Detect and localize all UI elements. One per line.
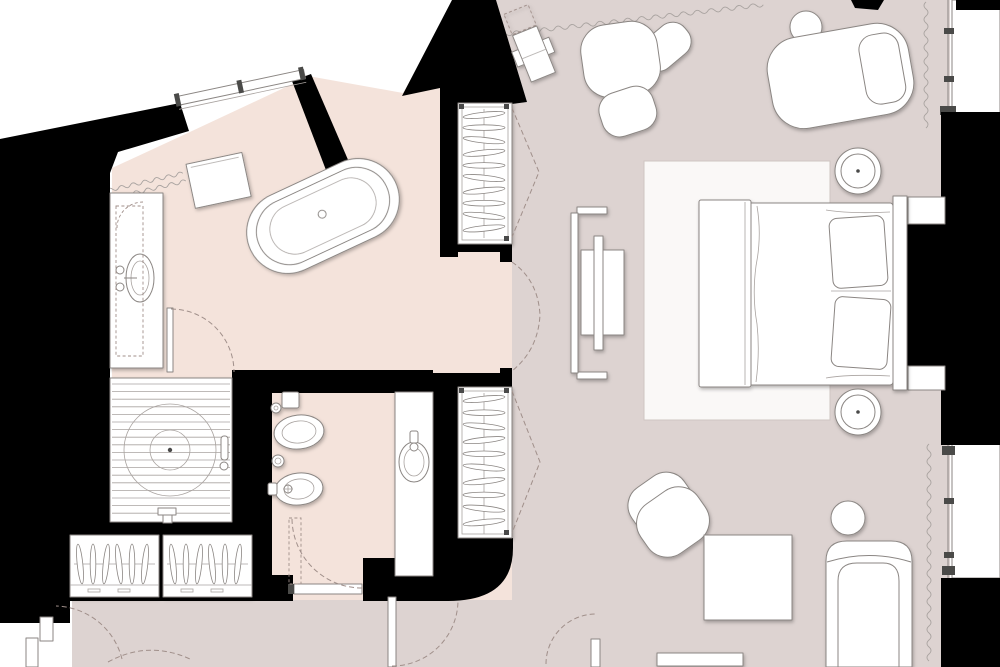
shower-control-icon bbox=[220, 462, 228, 470]
lower-wardrobe bbox=[458, 387, 512, 538]
wall-west-upper-wardrobe bbox=[440, 85, 458, 257]
toilet-cistern bbox=[282, 392, 299, 408]
king-bed bbox=[699, 196, 907, 390]
niche-upper bbox=[908, 197, 945, 224]
tv-panel bbox=[594, 236, 603, 350]
hanger-icon bbox=[90, 544, 96, 584]
round-pillow bbox=[831, 501, 865, 535]
wc-door-leaf bbox=[294, 584, 362, 594]
window-mullion-icon bbox=[944, 552, 954, 558]
nightstand-center bbox=[856, 169, 860, 173]
wc-faucet-icon bbox=[410, 431, 418, 443]
hinge-icon bbox=[504, 530, 509, 535]
hanger-icon bbox=[463, 410, 505, 416]
hanger-icon bbox=[129, 544, 135, 584]
pillow bbox=[831, 296, 892, 370]
wc-faucet-icon bbox=[410, 443, 418, 451]
faucet-icon bbox=[116, 266, 124, 274]
coffee-table bbox=[657, 653, 743, 666]
window-mullion-icon bbox=[944, 498, 954, 504]
window-mullion-icon bbox=[944, 76, 954, 82]
nightstand-bottom bbox=[835, 389, 881, 435]
walk-in-shower bbox=[110, 378, 232, 523]
hinge-icon bbox=[504, 104, 509, 109]
toilet-roll-icon bbox=[271, 403, 281, 413]
window-mullion-icon bbox=[944, 28, 954, 34]
bed-foot-runner bbox=[699, 200, 751, 387]
headboard bbox=[893, 196, 907, 390]
window-glass bbox=[952, 443, 1000, 578]
bathroom-inner-door-leaf bbox=[167, 308, 173, 372]
hanger-icon bbox=[463, 200, 505, 206]
wc-vanity-sink bbox=[395, 392, 433, 576]
wall-east-main bbox=[941, 112, 1000, 445]
hanger-icon bbox=[183, 544, 189, 584]
wall-headboard-pier bbox=[906, 224, 946, 366]
bidet-faucet-icon bbox=[268, 483, 277, 495]
vanity-sink bbox=[110, 193, 163, 368]
hinge-icon bbox=[459, 104, 464, 109]
shower-valve-icon bbox=[158, 508, 176, 515]
shower-head-center bbox=[168, 448, 172, 452]
wc-door-hinge bbox=[288, 584, 294, 594]
passage-jamb-top bbox=[500, 252, 512, 262]
wall-west-lower-wardrobe bbox=[433, 387, 458, 538]
bedroom-window-east-lower bbox=[942, 443, 1000, 578]
upper-wardrobe bbox=[458, 103, 512, 244]
floor-plan-svg: Hotel suite floor plan bbox=[0, 0, 1000, 667]
wc-vanity-counter bbox=[395, 392, 433, 576]
hinge-icon bbox=[504, 236, 509, 241]
wardrobe-box bbox=[458, 103, 512, 244]
window-end-fitting bbox=[942, 566, 955, 575]
nightstand-top bbox=[835, 148, 881, 194]
entry-door-leaf bbox=[388, 597, 396, 667]
hanger-icon bbox=[463, 451, 505, 457]
corner-door-hinge-block bbox=[40, 617, 53, 641]
armchair-seat bbox=[577, 18, 663, 101]
console-cap bbox=[577, 372, 607, 379]
hanger-icon bbox=[463, 492, 505, 498]
hanger-icon bbox=[463, 163, 505, 169]
wall-se-corner bbox=[941, 578, 1000, 667]
shower-handle-icon bbox=[221, 436, 228, 460]
hanger-icon bbox=[222, 544, 228, 584]
console-cap bbox=[577, 207, 607, 214]
sofa bbox=[826, 541, 912, 667]
console-rail bbox=[571, 213, 578, 373]
corner-door-frame bbox=[26, 638, 38, 667]
floor-plan-canvas: Hotel suite floor plan bbox=[0, 0, 1000, 667]
window-glass bbox=[952, 0, 1000, 116]
passage-jamb-bottom bbox=[500, 368, 512, 378]
window-end-fitting bbox=[942, 446, 955, 455]
faucet-icon bbox=[116, 283, 124, 291]
niche-lower bbox=[908, 366, 945, 390]
square-side-table bbox=[704, 535, 792, 620]
wall-ne-corner bbox=[956, 0, 1000, 10]
nightstand-center bbox=[856, 410, 860, 414]
hinge-icon bbox=[504, 388, 509, 393]
hanger-icon bbox=[463, 125, 505, 131]
shower-valve-icon bbox=[163, 515, 172, 523]
hinge-icon bbox=[459, 388, 464, 393]
pillow bbox=[829, 215, 889, 289]
flush-control-icon bbox=[272, 455, 284, 467]
terrace-door-leaf bbox=[591, 639, 600, 667]
